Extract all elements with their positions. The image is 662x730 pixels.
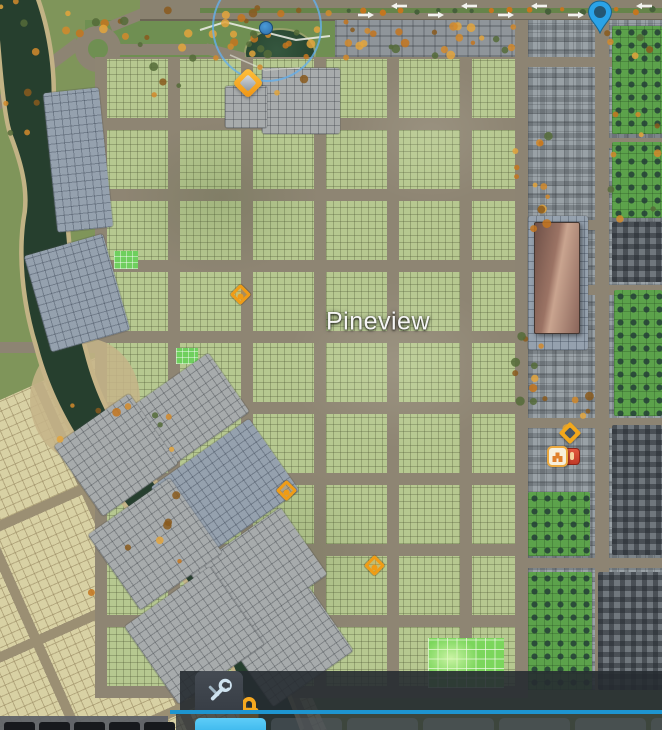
road-asset-6[interactable]: [651, 718, 662, 730]
thumbnail-0[interactable]: [4, 722, 35, 730]
thumbnail-bar: [0, 716, 168, 730]
green-zone-block: [612, 26, 662, 134]
zoned-grid: [225, 86, 267, 128]
pineview-right-road: [515, 20, 528, 698]
tab-road-tools[interactable]: [195, 671, 243, 710]
road-asset-5[interactable]: [575, 718, 646, 730]
east-district: [528, 20, 662, 690]
road-asset-3[interactable]: [423, 718, 494, 730]
road-asset-4[interactable]: [499, 718, 570, 730]
green-zone-block: [528, 492, 590, 556]
green-zone-block: [612, 142, 662, 218]
thumbnail-2[interactable]: [74, 722, 105, 730]
thumbnail-4[interactable]: [144, 722, 175, 730]
zone-patch: [114, 251, 138, 269]
map-viewport[interactable]: Pineview: [0, 0, 662, 730]
road-asset-2[interactable]: [347, 718, 418, 730]
top-right-housing: [335, 20, 528, 57]
road-east: [118, 44, 213, 55]
thumbnail-1[interactable]: [39, 722, 70, 730]
road-toolbar-panel: P: [180, 671, 662, 710]
building-block: [612, 425, 662, 555]
service-building-dot[interactable]: [259, 21, 273, 35]
road-asset-1[interactable]: [271, 718, 342, 730]
road-asset-row: [176, 714, 662, 730]
large-brick-building: [534, 222, 580, 334]
road-asset-0[interactable]: [195, 718, 266, 730]
district-label: Pineview: [326, 308, 430, 337]
thumbnail-3[interactable]: [109, 722, 140, 730]
green-zone-block: [614, 290, 662, 416]
building-block: [612, 222, 662, 282]
